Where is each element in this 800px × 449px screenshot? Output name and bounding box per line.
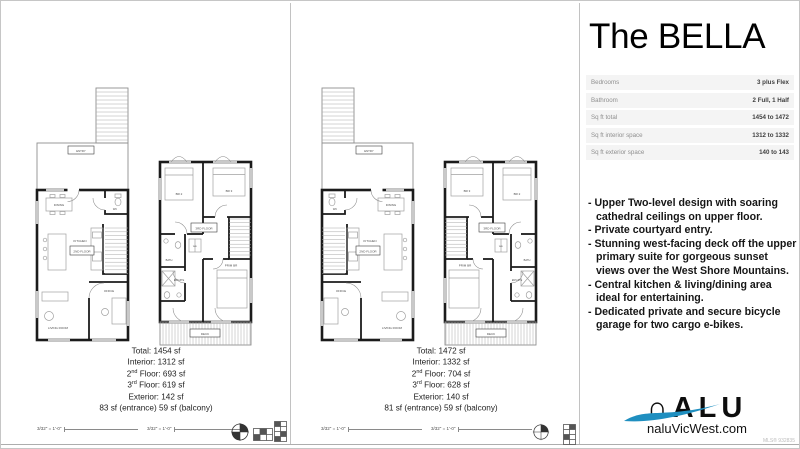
level-label: 2ND FLOOR xyxy=(73,249,91,253)
feature-list: - Upper Two-level design with soaring ca… xyxy=(588,197,797,333)
north-arrow-icon xyxy=(532,423,550,441)
wc-label: WC xyxy=(333,207,337,211)
spec-value: 1454 to 1472 xyxy=(752,114,789,121)
feature-item: - Dedicated private and secure bicycle g… xyxy=(588,306,797,333)
feature-item: - Central kitchen & living/dining area i… xyxy=(588,279,797,306)
panel-divider xyxy=(290,3,291,444)
living-room-label: LIVING ROOM xyxy=(48,326,69,330)
washer-dryer-label: W/D xyxy=(499,246,504,248)
bath-label: BATH xyxy=(166,258,173,262)
nalu-wordmark: ∩ALU xyxy=(612,393,782,423)
bedroom2-label: BR 2 xyxy=(176,192,183,196)
kitchen-label: KITCHEN xyxy=(73,239,86,243)
spec-row-sqft-interior: Sq ft interior space 1312 to 1332 xyxy=(586,128,794,143)
spec-row-bedrooms: Bedrooms 3 plus Flex xyxy=(586,75,794,90)
feature-item: - Stunning west-facing deck off the uppe… xyxy=(588,238,797,279)
bedroom3-label: BR 3 xyxy=(226,189,233,193)
spec-label: Bathroom xyxy=(591,97,618,104)
plan-a-totals: Total: 1454 sf Interior: 1312 sf 2nd Flo… xyxy=(66,345,246,414)
level-label: 2ND FLOOR xyxy=(359,249,377,253)
scale-bar: 3/32" = 1'-0" xyxy=(321,426,422,431)
brochure-page: ENTRYDININGWCKITCHEN2ND FLOORLIVING ROOM… xyxy=(0,0,800,449)
scale-bar: 3/32" = 1'-0" xyxy=(431,426,532,431)
floorplan-b-level3: BR 2BR 3W/DBATHENSUITEPRIM BR3RD FLOORDE… xyxy=(442,148,539,348)
page-title: The BELLA xyxy=(589,17,765,57)
deck-label: DECK xyxy=(201,332,209,336)
breakdown-line: 83 sf (entrance) 59 sf (balcony) xyxy=(66,402,246,413)
spec-value: 140 to 143 xyxy=(759,149,789,156)
spec-row-sqft-total: Sq ft total 1454 to 1472 xyxy=(586,110,794,125)
floorplan-a-level3: BR 2BR 3W/DBATHENSUITEPRIM BR3RD FLOORDE… xyxy=(157,148,254,348)
bedroom3-label: BR 3 xyxy=(464,189,471,193)
total-line: Total: 1472 sf xyxy=(351,345,531,356)
ensuite-label: ENSUITE xyxy=(512,279,523,282)
north-arrow-icon xyxy=(230,422,250,442)
keyplan-icon xyxy=(253,428,273,441)
spec-table: Bedrooms 3 plus Flex Bathroom 2 Full, 1 … xyxy=(586,75,794,163)
spec-label: Sq ft exterior space xyxy=(591,149,644,156)
total-line: Total: 1454 sf xyxy=(66,345,246,356)
panel-divider xyxy=(579,3,580,444)
floorplan-b-level2: ENTRYDININGWCKITCHEN2ND FLOORLIVING ROOM… xyxy=(319,86,416,343)
keyplan-icon xyxy=(563,424,576,445)
entry-label: ENTRY xyxy=(364,149,374,153)
office-label: OFFICE xyxy=(104,289,114,293)
breakdown-line: 81 sf (entrance) 59 sf (balcony) xyxy=(351,402,531,413)
bedroom2-label: BR 2 xyxy=(514,192,521,196)
floor2-line: 2nd Floor: 704 sf xyxy=(351,368,531,379)
kitchen-label: KITCHEN xyxy=(363,239,376,243)
living-room-label: LIVING ROOM xyxy=(382,326,403,330)
interior-line: Interior: 1312 sf xyxy=(66,356,246,367)
spec-value: 3 plus Flex xyxy=(757,79,789,86)
wc-label: WC xyxy=(113,207,117,211)
plan-b-totals: Total: 1472 sf Interior: 1332 sf 2nd Flo… xyxy=(351,345,531,414)
dining-label: DINING xyxy=(54,203,65,207)
feature-item: - Upper Two-level design with soaring ca… xyxy=(588,197,797,224)
floor3-line: 3rd Floor: 628 sf xyxy=(351,379,531,390)
info-panel: The BELLA Bedrooms 3 plus Flex Bathroom … xyxy=(584,1,797,448)
nalu-wordmark-text: ∩ALU xyxy=(647,392,748,424)
feature-item: - Private courtyard entry. xyxy=(588,224,797,238)
office-label: OFFICE xyxy=(336,289,346,293)
exterior-line: Exterior: 142 sf xyxy=(66,391,246,402)
interior-line: Interior: 1332 sf xyxy=(351,356,531,367)
spec-value: 2 Full, 1 Half xyxy=(753,97,789,104)
primary-bedroom-label: PRIM BR xyxy=(459,264,472,268)
spec-label: Sq ft total xyxy=(591,114,617,121)
spec-value: 1312 to 1332 xyxy=(752,132,789,139)
nalu-logo: ∩ALU naluVicWest.com xyxy=(612,393,782,436)
ensuite-label: ENSUITE xyxy=(174,279,185,282)
spec-label: Sq ft interior space xyxy=(591,132,643,139)
level-label: 3RD FLOOR xyxy=(195,226,213,230)
deck-label: DECK xyxy=(487,332,495,336)
washer-dryer-label: W/D xyxy=(193,246,198,248)
keyplan-icon xyxy=(274,421,287,442)
dining-label: DINING xyxy=(386,203,397,207)
bath-label: BATH xyxy=(524,258,531,262)
spec-row-sqft-exterior: Sq ft exterior space 140 to 143 xyxy=(586,145,794,160)
spec-label: Bedrooms xyxy=(591,79,619,86)
floorplan-a-level2: ENTRYDININGWCKITCHEN2ND FLOORLIVING ROOM… xyxy=(34,86,131,343)
scale-bar: 3/32" = 1'-0" xyxy=(37,426,138,431)
floor2-line: 2nd Floor: 693 sf xyxy=(66,368,246,379)
entry-label: ENTRY xyxy=(76,149,86,153)
mls-number: MLS® 932835 xyxy=(763,438,795,444)
spec-row-bathroom: Bathroom 2 Full, 1 Half xyxy=(586,93,794,108)
level-label: 3RD FLOOR xyxy=(483,226,501,230)
primary-bedroom-label: PRIM BR xyxy=(225,264,238,268)
floor3-line: 3rd Floor: 619 sf xyxy=(66,379,246,390)
exterior-line: Exterior: 140 sf xyxy=(351,391,531,402)
